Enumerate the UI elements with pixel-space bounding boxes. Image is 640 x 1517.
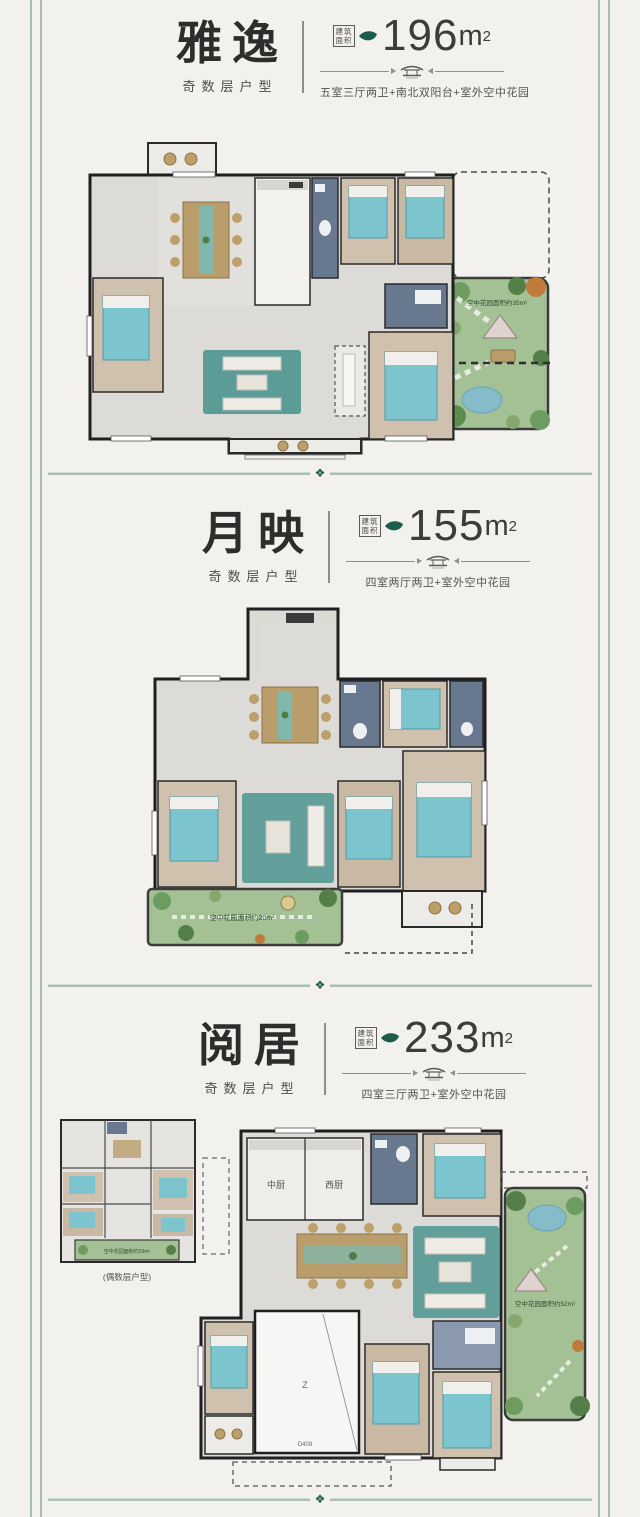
floorplan-yueju: 空中花园面积约29m² (偶数层户型) 中厨 西厨 bbox=[55, 1106, 590, 1491]
apartment-1 bbox=[87, 143, 453, 459]
area-badge-line2: 面积 bbox=[356, 1038, 376, 1047]
sofa bbox=[223, 357, 281, 370]
section2-title: 月映 bbox=[192, 509, 314, 557]
section2-subtitle: 奇数层户型 bbox=[192, 566, 314, 585]
section3-area-row: 建筑 面积 233 m 2 bbox=[342, 1016, 526, 1060]
leaf-icon bbox=[380, 1030, 400, 1046]
section1-area-row: 建筑 面积 196 m 2 bbox=[320, 14, 504, 58]
balcony-top bbox=[148, 143, 216, 175]
area-badge: 建筑 面积 bbox=[359, 515, 381, 538]
floorplan-yayi: 空中花园面积约35m² bbox=[85, 126, 555, 461]
garden-label-2: 空中花园面积约20m² bbox=[210, 913, 276, 922]
dashed-box bbox=[203, 1158, 229, 1254]
area-sup: 2 bbox=[509, 518, 517, 535]
divider-gem-icon: ❖ bbox=[315, 979, 326, 991]
frame-line-right-outer bbox=[608, 0, 610, 1517]
area-unit: m bbox=[484, 510, 508, 543]
kitchen bbox=[255, 178, 310, 305]
inset-garden-label: 空中花园面积约29m² bbox=[104, 1248, 151, 1255]
kitchen-west-label: 西厨 bbox=[325, 1180, 343, 1190]
area-badge: 建筑 面积 bbox=[355, 1027, 377, 1050]
section-divider-3: ❖ bbox=[48, 1493, 592, 1505]
header-vertical-divider bbox=[324, 1023, 326, 1095]
balcony-left bbox=[205, 1416, 253, 1454]
garden-ornament bbox=[281, 896, 295, 910]
inset-caption: (偶数层户型) bbox=[103, 1272, 151, 1282]
divider-gem-icon: ❖ bbox=[315, 467, 326, 479]
garden-pond bbox=[462, 387, 502, 413]
sky-garden-1: 空中花园面积约35m² bbox=[444, 277, 550, 430]
sky-garden-2: 空中花园面积约20m² bbox=[148, 889, 342, 945]
section3-features: 四室三厅两卫+室外空中花园 bbox=[342, 1086, 526, 1102]
dashed-boundary bbox=[453, 172, 549, 278]
frame-line-left-inner bbox=[40, 0, 42, 1517]
pavilion-icon bbox=[398, 63, 426, 79]
door-label: D409 bbox=[298, 1442, 313, 1448]
section3-area-block: 建筑 面积 233 m 2 bbox=[342, 1016, 526, 1102]
header-rule bbox=[342, 1065, 526, 1081]
void-label: Z bbox=[302, 1380, 308, 1390]
brochure-page: 雅逸 奇数层户型 建筑 面积 196 m 2 bbox=[0, 0, 640, 1517]
garden-bench bbox=[491, 350, 515, 362]
section1-subtitle: 奇数层户型 bbox=[166, 76, 288, 95]
section-divider-1: ❖ bbox=[48, 467, 592, 479]
header-rule bbox=[346, 553, 530, 569]
garden-label-1: 空中花园面积约35m² bbox=[467, 298, 528, 307]
garden-pond bbox=[528, 1205, 566, 1231]
section-divider-2: ❖ bbox=[48, 979, 592, 991]
divider-gem-icon: ❖ bbox=[315, 1493, 326, 1505]
section2-title-block: 月映 奇数层户型 bbox=[192, 509, 314, 585]
area-value: 155 bbox=[408, 504, 484, 548]
area-badge-line1: 建筑 bbox=[360, 517, 380, 526]
area-sup: 2 bbox=[483, 28, 491, 45]
section2-area-row: 建筑 面积 155 m 2 bbox=[346, 504, 530, 548]
area-badge-line1: 建筑 bbox=[334, 27, 354, 36]
frame-line-right-inner bbox=[598, 0, 600, 1517]
section3-header: 阅居 奇数层户型 建筑 面积 233 m 2 bbox=[188, 1016, 526, 1102]
area-badge-line1: 建筑 bbox=[356, 1029, 376, 1038]
area-unit: m bbox=[480, 1022, 504, 1055]
frame-line-left-outer bbox=[30, 0, 32, 1517]
section2-area-block: 建筑 面积 155 m 2 bbox=[346, 504, 530, 590]
sofa bbox=[425, 1238, 485, 1254]
sky-garden-3: 空中花园面积约52m² bbox=[501, 1172, 590, 1420]
leaf-icon bbox=[358, 28, 378, 44]
floorplan-yueying: 空中花园面积约20m² bbox=[140, 601, 510, 973]
dashed-boundary-bottom bbox=[233, 1462, 391, 1486]
apartment-2 bbox=[152, 609, 487, 927]
header-vertical-divider bbox=[328, 511, 330, 583]
garden-label-3: 空中花园面积约52m² bbox=[515, 1299, 576, 1308]
area-badge-line2: 面积 bbox=[360, 526, 380, 535]
section1-header: 雅逸 奇数层户型 建筑 面积 196 m 2 bbox=[166, 14, 504, 100]
header-rule bbox=[320, 63, 504, 79]
section1-area-block: 建筑 面积 196 m 2 bbox=[320, 14, 504, 100]
area-value: 233 bbox=[404, 1016, 480, 1060]
area-unit: m bbox=[458, 20, 482, 53]
pavilion-icon bbox=[424, 553, 452, 569]
section3-title: 阅居 bbox=[188, 1021, 310, 1069]
apartment-3: 中厨 西厨 Z D409 bbox=[198, 1128, 501, 1470]
section1-title-block: 雅逸 奇数层户型 bbox=[166, 19, 288, 95]
section3-title-block: 阅居 奇数层户型 bbox=[188, 1021, 310, 1097]
pavilion-icon bbox=[420, 1065, 448, 1081]
section1-features: 五室三厅两卫+南北双阳台+室外空中花园 bbox=[320, 84, 504, 100]
section2-features: 四室两厅两卫+室外空中花园 bbox=[346, 574, 530, 590]
sofa bbox=[308, 806, 324, 866]
inset-even-floor-plan: 空中花园面积约29m² bbox=[61, 1120, 195, 1262]
area-badge: 建筑 面积 bbox=[333, 25, 355, 48]
bathroom-2 bbox=[450, 681, 483, 747]
area-sup: 2 bbox=[505, 1030, 513, 1047]
section3-subtitle: 奇数层户型 bbox=[188, 1078, 310, 1097]
kitchen-cn-label: 中厨 bbox=[267, 1179, 285, 1190]
section2-header: 月映 奇数层户型 建筑 面积 155 m 2 bbox=[192, 504, 530, 590]
header-vertical-divider bbox=[302, 21, 304, 93]
balcony-bottom bbox=[229, 439, 361, 453]
area-value: 196 bbox=[382, 14, 458, 58]
area-badge-line2: 面积 bbox=[334, 36, 354, 45]
section1-title: 雅逸 bbox=[166, 19, 288, 67]
balcony bbox=[402, 891, 482, 927]
leaf-icon bbox=[384, 518, 404, 534]
